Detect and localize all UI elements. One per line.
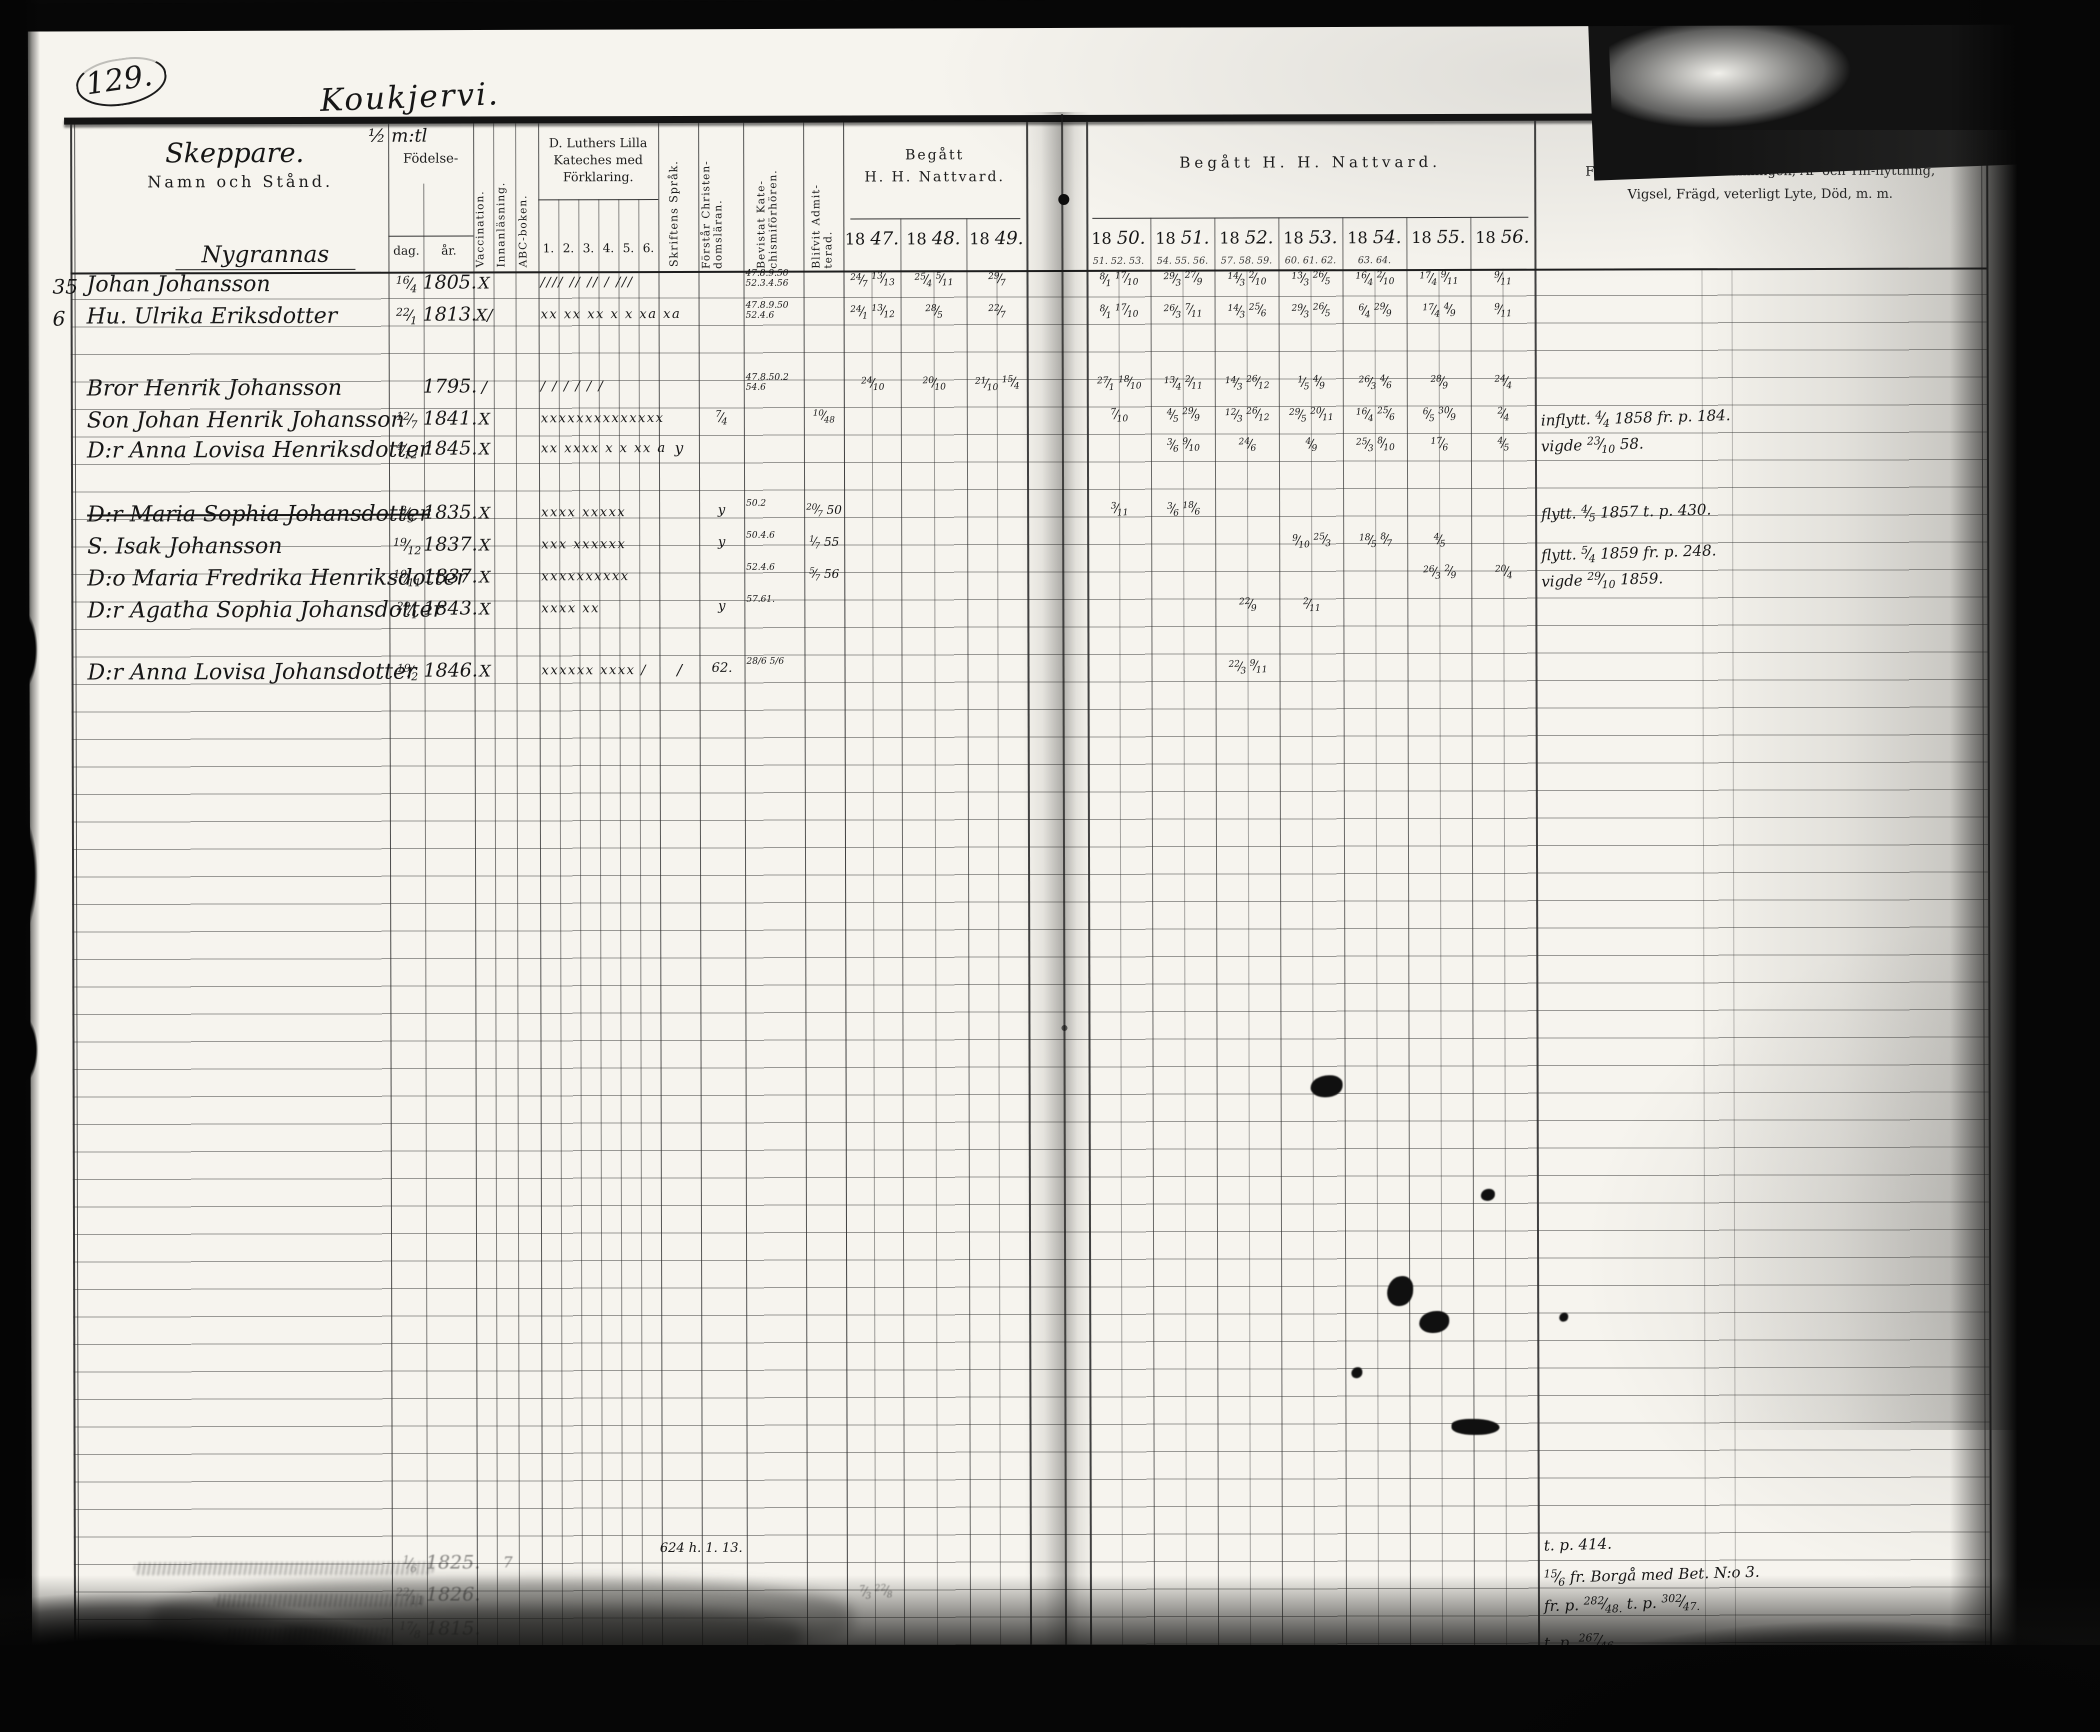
extra-year-scribble: 51. 52. 53. <box>1086 256 1150 267</box>
christianity-mark: y <box>699 503 744 518</box>
page-number: 129. <box>73 52 170 111</box>
catechism-line1: D. Luthers Lilla <box>549 135 648 150</box>
christianity-mark: 62. <box>700 661 745 676</box>
communion-dates: 28⁄9 <box>1408 372 1470 393</box>
communion-dates: 8⁄1 17⁄10 <box>1088 301 1150 322</box>
christ-line2: domsläran. <box>712 129 724 269</box>
communion-dates: 26⁄3 4⁄6 <box>1344 372 1406 393</box>
christ-line1: Förstår Christen- <box>700 129 712 269</box>
catechism-marks: xxxxxx xxxx / <box>542 663 667 678</box>
admitted-date: 10⁄48 <box>804 409 844 426</box>
attended-examinations-header: Bevistat Kate-chismiförhören. <box>755 129 779 273</box>
extra-year-scribble: 57. 58. 59. <box>1214 255 1278 266</box>
extra-year-scribble: 54. 55. 56. <box>1150 256 1214 267</box>
row-margin-number: 6 <box>53 307 66 331</box>
person-name: D:r Anna Lovisa Johansdotter <box>87 660 416 686</box>
birth-day: 19⁄2 <box>390 662 426 684</box>
communion-dates: 3⁄6 18⁄6 <box>1153 499 1215 520</box>
scan-corner-blob <box>0 1520 620 1732</box>
birth-year: 1795. <box>423 376 475 398</box>
birth-year: 1805. <box>422 272 474 294</box>
year-label: 18 55. <box>1406 227 1470 248</box>
birth-day: 4⁄12 <box>389 440 425 462</box>
examination-years: 47.8.9.50 52.3.4.56 <box>745 269 803 290</box>
communion-dates: 6⁄4 29⁄9 <box>1344 300 1406 321</box>
scripture-mark: / <box>660 661 700 679</box>
admitted-date: 20⁄7 50 <box>804 503 844 520</box>
examination-years: 28/6 5/6 <box>746 657 804 667</box>
catechism-marks: / / / / / / <box>541 379 666 394</box>
admitted-header: Blifvit Admit-terad. <box>810 129 834 273</box>
examination-years: 50.2 <box>746 499 804 509</box>
communion-dates: 24⁄7 13⁄13 <box>845 270 900 291</box>
birth-day-header: dag. <box>388 244 424 258</box>
farm-name: Nygrannas <box>175 242 355 270</box>
scan-corner-blob <box>1400 1560 2100 1732</box>
catechism-subcol-label: 2. <box>558 241 578 255</box>
birth-year: 1837. <box>423 566 475 588</box>
communion-dates: 16⁄4 25⁄6 <box>1344 404 1406 425</box>
catechism-marks: xxxx xxxxx <box>541 505 666 520</box>
scan-edge-right <box>1950 0 2100 1732</box>
year-label: 18 51. <box>1150 228 1214 249</box>
vaccination-mark: X <box>474 535 495 554</box>
catechism-subcol-label: 1. <box>538 241 558 255</box>
divider <box>850 218 1020 219</box>
catechism-subcol-label: 4. <box>598 241 618 255</box>
year-label: 18 49. <box>966 228 1026 249</box>
communion-dates: 20⁄4 <box>1473 562 1535 583</box>
communion-dates: 14⁄3 26⁄12 <box>1216 373 1278 394</box>
christianity-mark: y <box>699 599 744 614</box>
communion-dates: 24⁄4 <box>1472 372 1534 393</box>
year-label: 18 50. <box>1086 228 1150 249</box>
birth-year-header: år. <box>426 244 471 258</box>
scanned-ledger-page: 129. Koukjervi. Skeppare. Namn och Stånd… <box>0 0 2100 1732</box>
communion-dates: 17⁄4 4⁄9 <box>1408 300 1470 321</box>
communion-dates: 16⁄4 2⁄10 <box>1344 268 1406 289</box>
birth-day: 22⁄1 <box>389 306 425 328</box>
communion-dates: 18⁄5 8⁄7 <box>1345 530 1407 551</box>
margin-note: vigde 23⁄10 58. <box>1541 433 1644 458</box>
catechism-line3: Förklaring. <box>563 169 634 184</box>
communion-dates: 21⁄10 15⁄4 <box>968 374 1026 395</box>
person-name: Bror Henrik Johansson <box>87 376 342 402</box>
reading-header: Innanläsning. <box>495 131 507 267</box>
communion-1-header: Begått H. H. Nattvard. <box>843 144 1026 189</box>
examination-years: 50.4.6 <box>746 531 804 541</box>
communion-dates: 14⁄3 25⁄6 <box>1216 301 1278 322</box>
vaccination-mark: X <box>474 567 495 586</box>
scripture-mark: y <box>659 439 699 457</box>
communion-dates: 22⁄9 <box>1217 595 1279 616</box>
communion-dates: 22⁄3 9⁄11 <box>1217 657 1279 678</box>
divider <box>388 236 473 237</box>
vaccination-mark: X <box>475 661 496 680</box>
book-fold-shadow <box>1020 112 1094 1680</box>
communion-dates: 24⁄6 <box>1216 435 1278 456</box>
catechism-marks: xxxxxxxxxx <box>541 569 666 584</box>
birth-year: 1845. <box>423 438 475 460</box>
communion-dates: 3⁄11 <box>1089 499 1151 520</box>
birth-day: 29⁄1 <box>389 600 425 622</box>
birth-year: 1846. <box>423 660 475 682</box>
birth-year: 1841. <box>423 408 475 430</box>
communion-dates: 3⁄6 9⁄10 <box>1152 435 1214 456</box>
communion-dates: 29⁄5 20⁄11 <box>1280 405 1342 426</box>
birth-year: 1835. <box>423 502 475 524</box>
birth-day: 19⁄11 <box>389 568 425 590</box>
christianity-mark: 7⁄4 <box>699 409 744 428</box>
catechism-line2: Kateches med <box>554 152 643 167</box>
extra-year-scribble: 63. 64. <box>1342 255 1406 266</box>
year-label: 18 54. <box>1342 227 1406 248</box>
row-margin-number: 35 <box>52 275 78 299</box>
communion-dates: 4⁄5 <box>1409 530 1471 551</box>
communion-dates: 22⁄7 <box>968 302 1026 323</box>
catechism-marks: xxxx xx <box>541 601 666 616</box>
admit-line1: Blifvit Admit- <box>810 129 822 269</box>
communion-dates: 9⁄10 25⁄3 <box>1281 531 1343 552</box>
name-column-header: Namn och Stånd. <box>100 172 380 192</box>
vaccination-mark: X <box>473 273 494 292</box>
catechism-subcol-label: 3. <box>578 241 598 255</box>
divider <box>1092 217 1528 219</box>
catechism-marks: xxxxxxxxxxxxxx <box>541 411 666 426</box>
communion-dates: 1⁄5 4⁄9 <box>1280 373 1342 394</box>
examination-years: 57.61. <box>746 595 804 605</box>
village-title: Koukjervi. <box>319 76 500 119</box>
mantal-note: ½ m:tl <box>368 126 427 147</box>
birth-day: 3⁄3 <box>389 504 425 526</box>
communion-dates: 13⁄4 2⁄11 <box>1152 373 1214 394</box>
communion-dates: 29⁄7 <box>968 270 1026 291</box>
catechism-subcol-label: 6. <box>638 241 658 255</box>
birth-header: Födelse- <box>388 152 473 167</box>
scripture-language-header: Skriftens Språk. <box>667 131 680 267</box>
margin-note: t. p. 414. <box>1544 1535 1613 1555</box>
vaccination-mark: X/ <box>474 305 495 324</box>
birth-day: 19⁄12 <box>389 536 425 558</box>
vaccination-mark: X <box>474 599 495 618</box>
divider <box>538 199 658 200</box>
bevistat-line2: chismiförhören. <box>767 129 779 269</box>
communion-2-header: Begått H. H. Nattvard. <box>1086 153 1534 172</box>
person-name: S. Isak Johansson <box>87 534 282 560</box>
admit-line2: terad. <box>822 129 834 269</box>
examination-years: 47.8.9.50 52.4.6 <box>746 301 804 322</box>
vaccination-mark: X <box>474 439 495 458</box>
binding-stitch-dot <box>1058 194 1069 205</box>
scan-edge-left <box>0 0 40 1732</box>
vaccination-header: Vaccination. <box>474 131 486 267</box>
catechism-header: D. Luthers Lilla Kateches med Förklaring… <box>538 135 658 186</box>
margin-note: vigde 29⁄10 1859. <box>1541 568 1663 593</box>
communion-dates: 24⁄10 <box>845 374 900 395</box>
communion-dates: 28⁄5 <box>902 302 966 323</box>
communion-dates: 25⁄4 5⁄11 <box>902 270 966 291</box>
communion-dates: 2⁄11 <box>1281 595 1343 616</box>
vaccination-mark: X <box>474 503 495 522</box>
year-label: 18 53. <box>1278 227 1342 248</box>
communion-dates: 7⁄10 <box>1088 405 1150 426</box>
vaccination-mark: / <box>474 377 495 396</box>
communion-dates: 17⁄4 9⁄11 <box>1408 268 1470 289</box>
communion-dates: 4⁄5 29⁄9 <box>1152 405 1214 426</box>
communion-dates: 2⁄4 <box>1472 404 1534 425</box>
communion-dates: 8⁄1 17⁄10 <box>1088 269 1150 290</box>
person-name: D:r Anna Lovisa Henriksdotter <box>87 438 430 464</box>
catechism-subcol-label: 5. <box>618 241 638 255</box>
communion1-line1: Begått <box>905 147 964 163</box>
person-name: Son Johan Henrik Johansson <box>87 408 405 434</box>
person-name: Johan Johansson <box>86 272 270 297</box>
understands-christianity-header: Förstår Christen-domsläran. <box>700 129 724 273</box>
admitted-date: 5⁄7 56 <box>804 567 844 584</box>
communion-dates: 4⁄5 <box>1472 434 1534 455</box>
communion-dates: 26⁄3 2⁄9 <box>1409 562 1471 583</box>
year-label: 18 56. <box>1470 227 1534 248</box>
catechism-marks: xx xx xx x x xa xa <box>541 307 666 322</box>
corner-reference-note: 624 h. 1. 13. <box>660 1541 743 1556</box>
catechism-marks: xxx xxxxxx <box>541 537 666 552</box>
communion-dates: 9⁄11 <box>1472 300 1534 321</box>
binding-stitch-dot <box>1061 1025 1067 1031</box>
communion-dates: 4⁄9 <box>1280 435 1342 456</box>
occupation-heading: Skeppare. <box>165 138 304 169</box>
admitted-date: 1⁄7 55 <box>804 535 844 552</box>
christianity-mark: y <box>699 535 744 550</box>
communion-dates: 13⁄3 26⁄5 <box>1280 269 1342 290</box>
communion-dates: 17⁄6 <box>1408 434 1470 455</box>
birth-year: 1837. <box>423 534 475 556</box>
person-name: D:r Maria Sophia Johansdotter <box>87 502 430 528</box>
communion-dates: 27⁄1 18⁄10 <box>1088 373 1150 394</box>
abc-book-header: ABC-boken. <box>517 131 529 267</box>
catechism-marks: //// // // / /// <box>540 275 665 290</box>
vaccination-mark: X <box>474 409 495 428</box>
communion-dates: 29⁄3 26⁄5 <box>1280 301 1342 322</box>
communion-dates: 14⁄3 2⁄10 <box>1216 269 1278 290</box>
birth-day: 12⁄7 <box>389 410 425 432</box>
birth-year: 1813. <box>423 304 475 326</box>
year-label: 18 48. <box>900 228 966 249</box>
bevistat-line1: Bevistat Kate- <box>755 129 767 269</box>
communion-dates: 24⁄1 13⁄12 <box>845 302 900 323</box>
year-label: 18 52. <box>1214 227 1278 248</box>
person-name: Hu. Ulrika Eriksdotter <box>87 304 338 330</box>
communion1-line2: H. H. Nattvard. <box>864 170 1004 186</box>
ink-smear <box>1451 1419 1499 1435</box>
examination-years: 52.4.6 <box>746 563 804 573</box>
communion-dates: 29⁄3 27⁄9 <box>1152 269 1214 290</box>
examination-years: 47.8.50.2 54.6 <box>746 373 804 394</box>
extra-year-scribble: 60. 61. 62. <box>1278 255 1342 266</box>
communion-dates: 25⁄3 8⁄10 <box>1344 434 1406 455</box>
birth-year: 1843. <box>423 598 475 620</box>
birth-day: 16⁄4 <box>388 274 424 296</box>
year-label: 18 47. <box>843 228 900 249</box>
catechism-marks: xx xxxx x x xx a <box>541 441 666 456</box>
communion-dates: 6⁄5 30⁄9 <box>1408 404 1470 425</box>
communion-dates: 26⁄3 7⁄11 <box>1152 301 1214 322</box>
communion-dates: 9⁄11 <box>1472 268 1534 289</box>
communion-dates: 20⁄10 <box>902 374 966 395</box>
communion-dates: 12⁄3 26⁄12 <box>1216 405 1278 426</box>
